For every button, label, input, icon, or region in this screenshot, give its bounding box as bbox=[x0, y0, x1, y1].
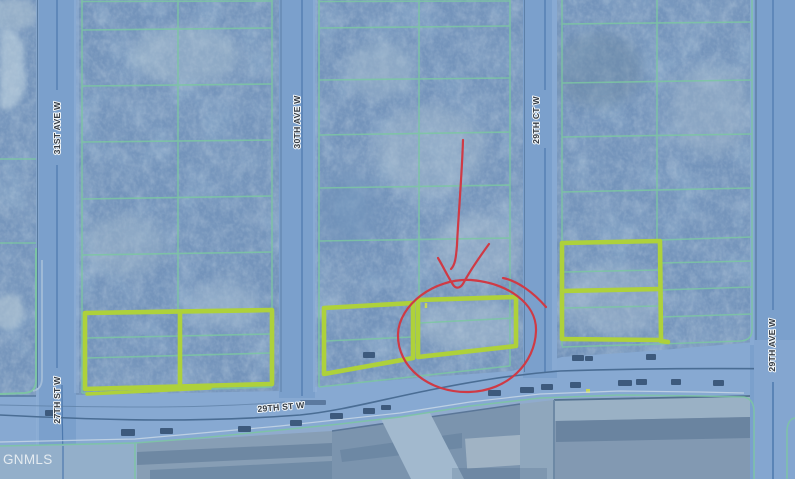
svg-text:29TH AVE W: 29TH AVE W bbox=[767, 318, 777, 372]
svg-text:27TH ST W: 27TH ST W bbox=[52, 376, 62, 424]
svg-text:31ST AVE W: 31ST AVE W bbox=[52, 101, 62, 154]
svg-text:30TH AVE W: 30TH AVE W bbox=[292, 95, 302, 149]
svg-text:29TH CT W: 29TH CT W bbox=[531, 96, 541, 144]
svg-text:GNMLS: GNMLS bbox=[3, 452, 53, 467]
